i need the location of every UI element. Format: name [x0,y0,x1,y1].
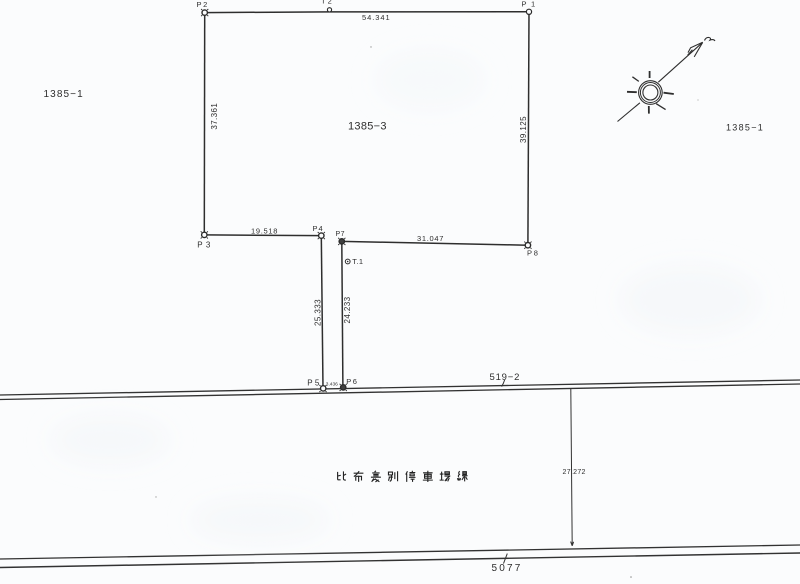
svg-text:3.436: 3.436 [326,381,338,387]
svg-text:P4: P4 [313,224,324,233]
svg-text:T2: T2 [321,0,334,6]
svg-text:P7: P7 [336,231,346,238]
svg-text:37.361: 37.361 [210,103,219,130]
svg-text:P1: P1 [522,0,540,8]
svg-text:19.518: 19.518 [251,227,278,236]
svg-text:31.047: 31.047 [417,234,444,243]
svg-text:519−2: 519−2 [490,372,521,383]
svg-text:54.341: 54.341 [362,13,391,22]
svg-text:39.125: 39.125 [519,116,528,143]
svg-text:T.1: T.1 [352,257,363,266]
svg-text:P2: P2 [197,0,209,9]
svg-text:P6: P6 [346,377,358,386]
svg-text:P3: P3 [197,241,213,250]
svg-text:25.333: 25.333 [313,299,322,326]
svg-text:1385−3: 1385−3 [348,121,387,133]
svg-text:P5: P5 [307,378,321,387]
svg-text:27.272: 27.272 [563,469,586,476]
svg-text:1385−1: 1385−1 [726,123,764,133]
svg-text:P8: P8 [527,249,540,258]
svg-text:5077: 5077 [492,563,523,574]
svg-text:1385−1: 1385−1 [44,89,84,100]
svg-text:24.233: 24.233 [343,296,352,323]
